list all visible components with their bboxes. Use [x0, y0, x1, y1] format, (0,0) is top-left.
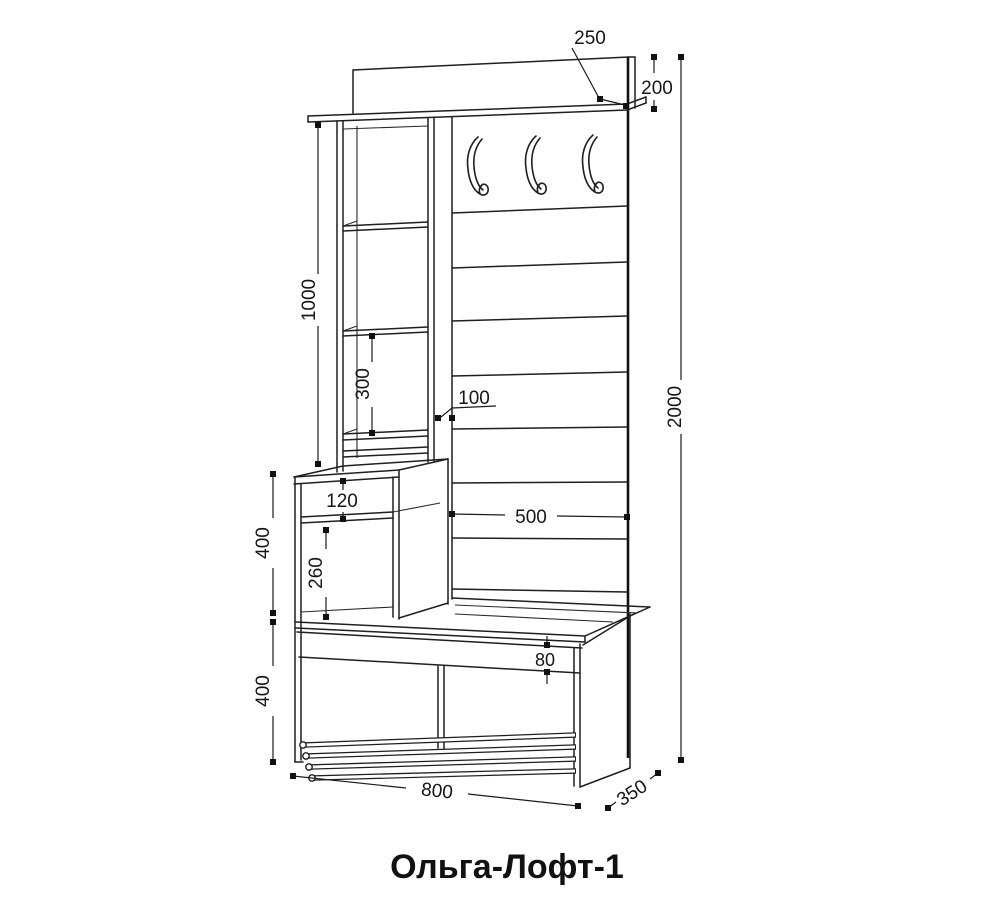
dim-shelf-depth: 250: [572, 28, 629, 109]
dim-bench-section-height: 400: [253, 619, 276, 765]
dim-cabinet-lower-opening: 260: [306, 527, 329, 620]
coat-hook-icon: [525, 136, 546, 194]
dim-label-250: 250: [574, 28, 606, 49]
dim-back-panel-width: 500: [449, 507, 630, 528]
dim-overall-height: 2000: [665, 54, 686, 763]
shoe-rails: [300, 735, 576, 781]
dim-label-400-lower: 400: [253, 675, 274, 707]
coat-hooks: [467, 135, 603, 195]
page-title: Ольга-Лофт-1: [390, 848, 624, 886]
dim-label-400-upper: 400: [253, 527, 274, 559]
dim-label-1000: 1000: [299, 279, 320, 321]
dim-seat-apron: 80: [535, 636, 555, 684]
dim-label-120: 120: [326, 491, 358, 512]
coat-hook-icon: [582, 135, 603, 193]
shelf-tower: [337, 118, 434, 472]
back-panel: [353, 57, 635, 758]
dim-cabinet-section-height: 400: [253, 471, 276, 616]
bench: [295, 598, 650, 787]
dim-shelf-spacing: 300: [353, 333, 375, 436]
drawing-page: 250 200 2000 1000 300 100: [0, 0, 1000, 900]
dim-overall-depth: 350: [605, 770, 661, 811]
dim-label-800: 800: [420, 779, 454, 803]
dim-label-100: 100: [458, 388, 490, 409]
dim-label-500: 500: [515, 507, 547, 528]
dim-label-2000: 2000: [665, 386, 686, 428]
dim-label-200: 200: [641, 78, 673, 99]
furniture-drawing: 250 200 2000 1000 300 100: [0, 0, 1000, 900]
dim-label-350: 350: [613, 776, 651, 811]
cabinet: [294, 459, 448, 762]
top-shelf: [308, 97, 646, 122]
dim-label-80: 80: [535, 650, 555, 670]
coat-hook-icon: [467, 137, 488, 195]
dim-label-260: 260: [306, 557, 327, 589]
dim-divider-depth: 100: [435, 388, 496, 421]
dim-label-300: 300: [353, 368, 374, 400]
dim-tower-height: 1000: [299, 122, 321, 467]
